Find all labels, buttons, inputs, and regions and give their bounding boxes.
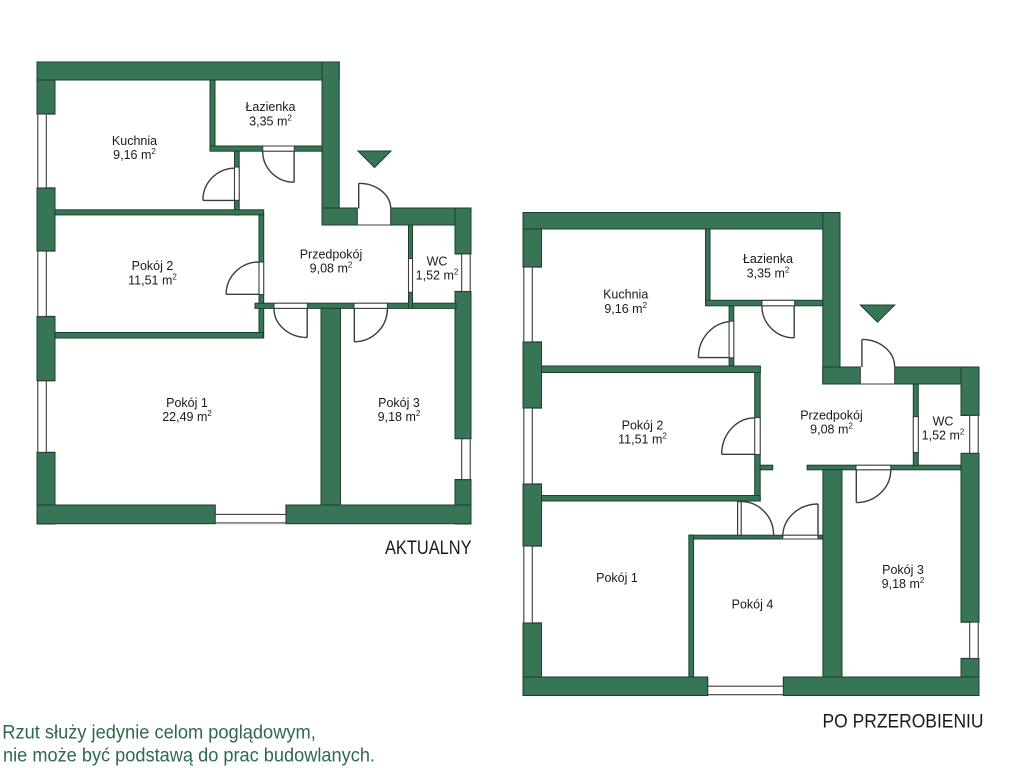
svg-text:Kuchnia: Kuchnia (603, 288, 648, 302)
svg-text:WC: WC (933, 415, 954, 429)
svg-text:9,18 m2: 9,18 m2 (378, 409, 421, 424)
svg-text:nie może być podstawą do prac: nie może być podstawą do prac budowlanyc… (3, 746, 375, 767)
svg-text:Pokój 1: Pokój 1 (596, 571, 638, 585)
svg-text:22,49 m2: 22,49 m2 (162, 409, 212, 424)
svg-text:3,35 m2: 3,35 m2 (249, 113, 292, 128)
svg-text:9,08 m2: 9,08 m2 (310, 261, 353, 276)
svg-text:Przedpokój: Przedpokój (300, 247, 363, 261)
svg-text:WC: WC (427, 254, 448, 268)
svg-text:Przedpokój: Przedpokój (800, 409, 863, 423)
svg-text:Pokój 2: Pokój 2 (132, 259, 174, 273)
svg-text:1,52 m2: 1,52 m2 (922, 428, 965, 443)
svg-text:Kuchnia: Kuchnia (112, 134, 157, 148)
svg-text:1,52 m2: 1,52 m2 (416, 268, 459, 283)
svg-text:9,08 m2: 9,08 m2 (810, 422, 853, 437)
svg-text:3,35 m2: 3,35 m2 (747, 265, 790, 280)
svg-text:9,18 m2: 9,18 m2 (882, 576, 925, 591)
svg-text:Pokój 1: Pokój 1 (166, 396, 208, 410)
svg-text:Pokój 3: Pokój 3 (882, 563, 924, 577)
svg-text:Rzut służy jedynie celom poglą: Rzut służy jedynie celom poglądowym, (2, 723, 316, 744)
svg-text:Pokój 4: Pokój 4 (732, 598, 774, 612)
svg-text:Łazienka: Łazienka (245, 100, 295, 114)
svg-text:Łazienka: Łazienka (743, 252, 793, 266)
svg-text:PO PRZEROBIENIU: PO PRZEROBIENIU (823, 712, 984, 733)
svg-text:Pokój 3: Pokój 3 (378, 396, 420, 410)
svg-text:9,16 m2: 9,16 m2 (113, 147, 156, 162)
svg-text:11,51 m2: 11,51 m2 (128, 272, 177, 287)
svg-text:9,16 m2: 9,16 m2 (604, 301, 647, 316)
svg-text:11,51 m2: 11,51 m2 (618, 432, 667, 447)
svg-text:AKTUALNY: AKTUALNY (385, 538, 472, 559)
svg-text:Pokój 2: Pokój 2 (622, 419, 664, 433)
